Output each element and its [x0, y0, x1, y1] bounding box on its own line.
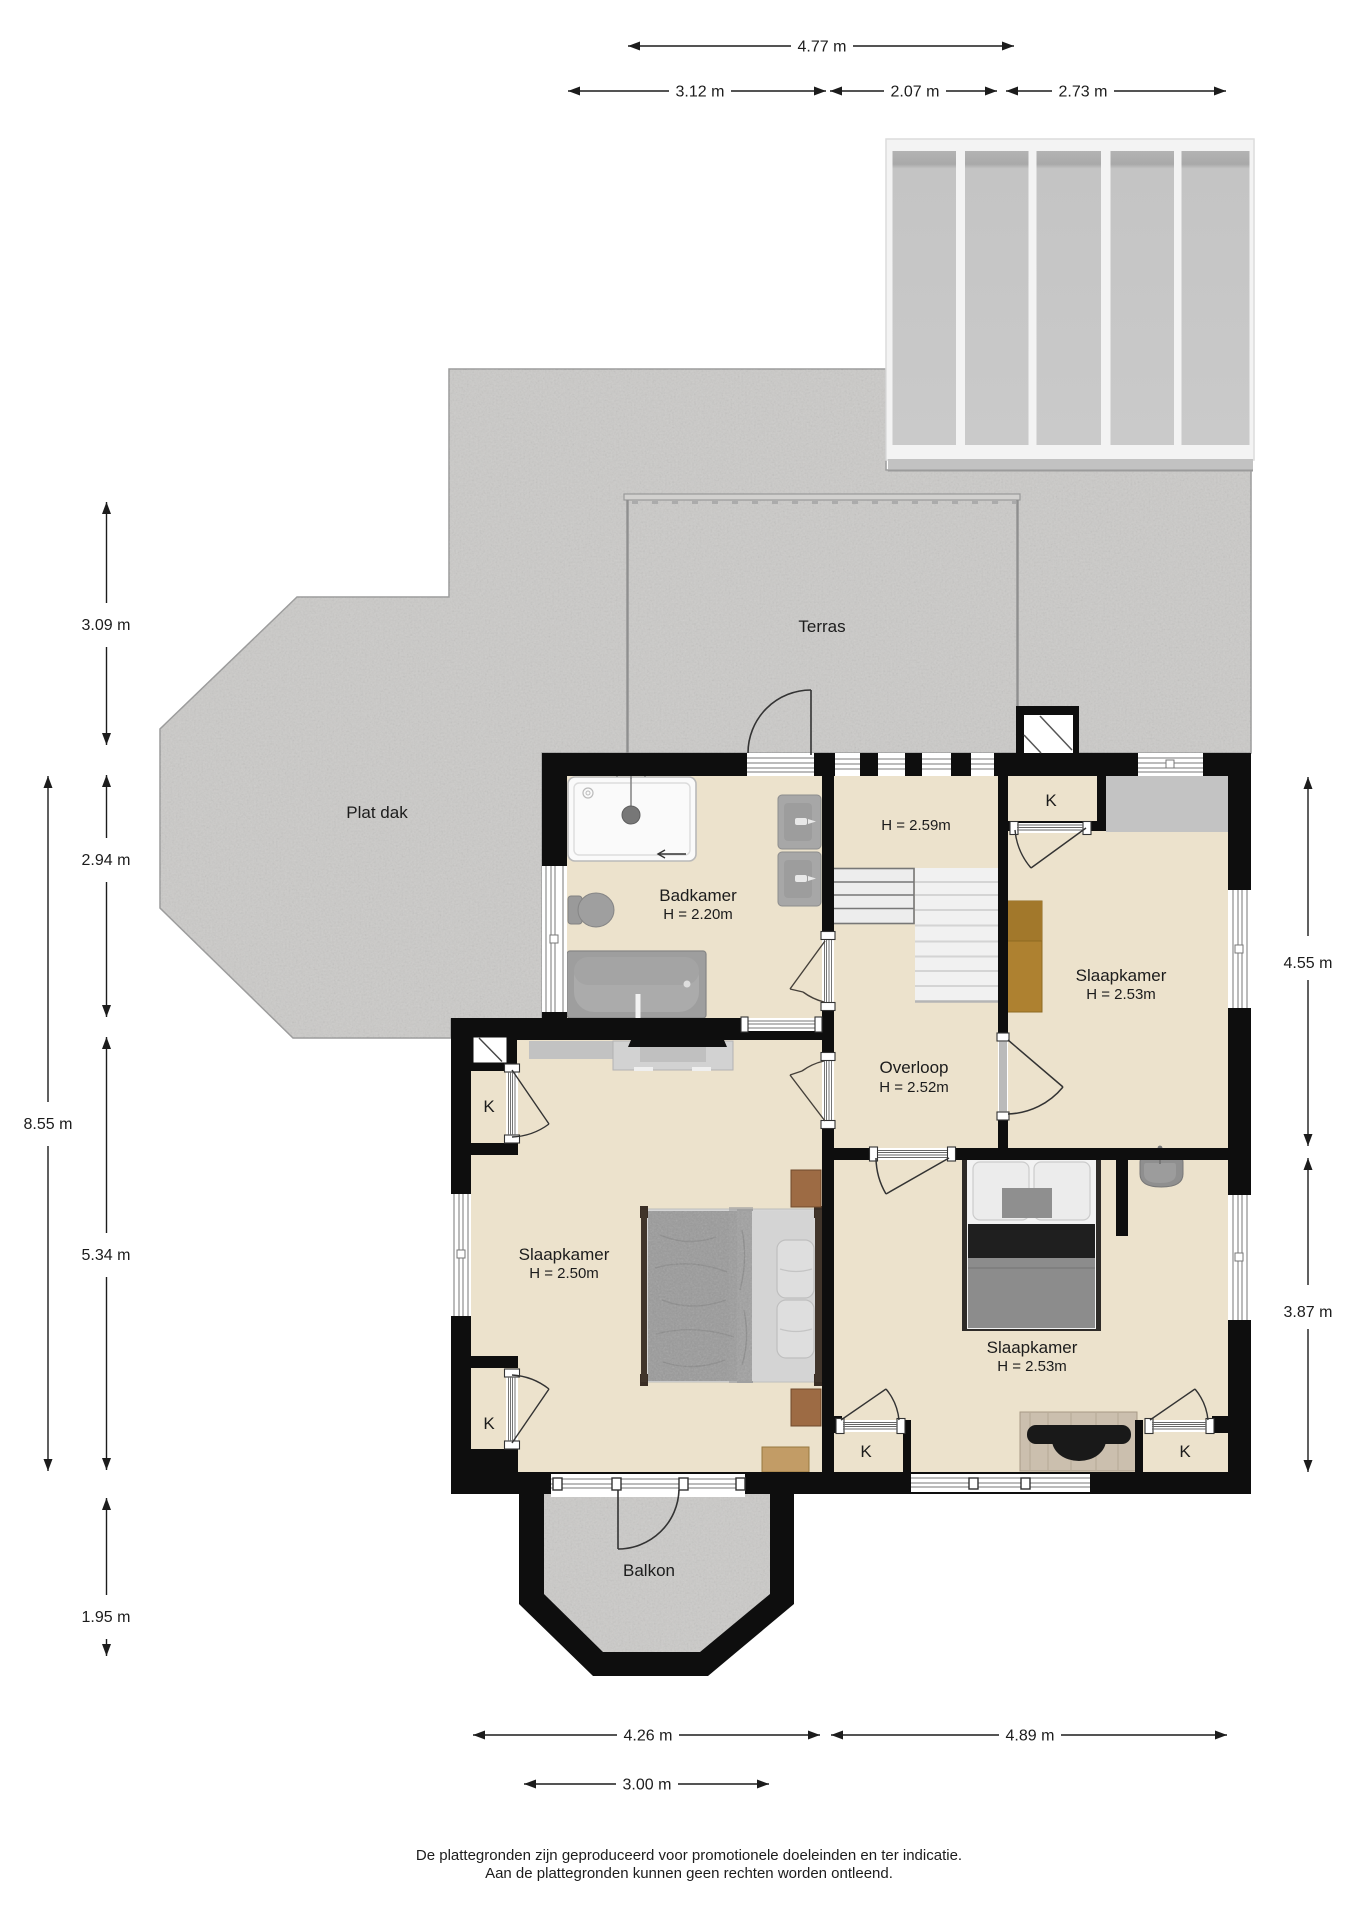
svg-text:2.73 m: 2.73 m: [1059, 84, 1108, 101]
svg-text:K: K: [860, 1442, 872, 1461]
svg-text:K: K: [1179, 1442, 1191, 1461]
svg-text:4.26 m: 4.26 m: [624, 1728, 673, 1745]
svg-text:Balkon: Balkon: [623, 1561, 675, 1580]
svg-text:Overloop: Overloop: [880, 1058, 949, 1077]
svg-text:H = 2.52m: H = 2.52m: [879, 1079, 949, 1096]
svg-text:Plat dak: Plat dak: [346, 803, 408, 822]
svg-text:2.94 m: 2.94 m: [82, 852, 131, 869]
svg-text:1.95 m: 1.95 m: [82, 1609, 131, 1626]
svg-text:K: K: [1045, 791, 1057, 810]
svg-text:2.07 m: 2.07 m: [891, 84, 940, 101]
svg-text:H = 2.53m: H = 2.53m: [1086, 986, 1156, 1003]
svg-text:Slaapkamer: Slaapkamer: [1076, 966, 1167, 985]
svg-text:K: K: [483, 1414, 495, 1433]
svg-text:De plattegronden zijn geproduc: De plattegronden zijn geproduceerd voor …: [416, 1847, 962, 1864]
svg-text:8.55 m: 8.55 m: [24, 1116, 73, 1133]
svg-text:H = 2.59m: H = 2.59m: [881, 817, 951, 834]
svg-text:3.12 m: 3.12 m: [676, 84, 725, 101]
svg-text:4.77 m: 4.77 m: [798, 39, 847, 56]
svg-text:K: K: [483, 1097, 495, 1116]
svg-text:Terras: Terras: [798, 617, 845, 636]
svg-text:3.09 m: 3.09 m: [82, 617, 131, 634]
svg-text:4.89 m: 4.89 m: [1006, 1728, 1055, 1745]
svg-text:Aan de plattegronden kunnen ge: Aan de plattegronden kunnen geen rechten…: [485, 1865, 893, 1882]
svg-text:H = 2.53m: H = 2.53m: [997, 1358, 1067, 1375]
svg-text:3.87 m: 3.87 m: [1284, 1304, 1333, 1321]
svg-text:3.00 m: 3.00 m: [623, 1777, 672, 1794]
svg-text:Slaapkamer: Slaapkamer: [987, 1338, 1078, 1357]
svg-text:H = 2.20m: H = 2.20m: [663, 906, 733, 923]
svg-text:Badkamer: Badkamer: [659, 886, 737, 905]
svg-text:Slaapkamer: Slaapkamer: [519, 1245, 610, 1264]
svg-text:4.55 m: 4.55 m: [1284, 955, 1333, 972]
svg-text:H = 2.50m: H = 2.50m: [529, 1265, 599, 1282]
svg-text:5.34 m: 5.34 m: [82, 1247, 131, 1264]
